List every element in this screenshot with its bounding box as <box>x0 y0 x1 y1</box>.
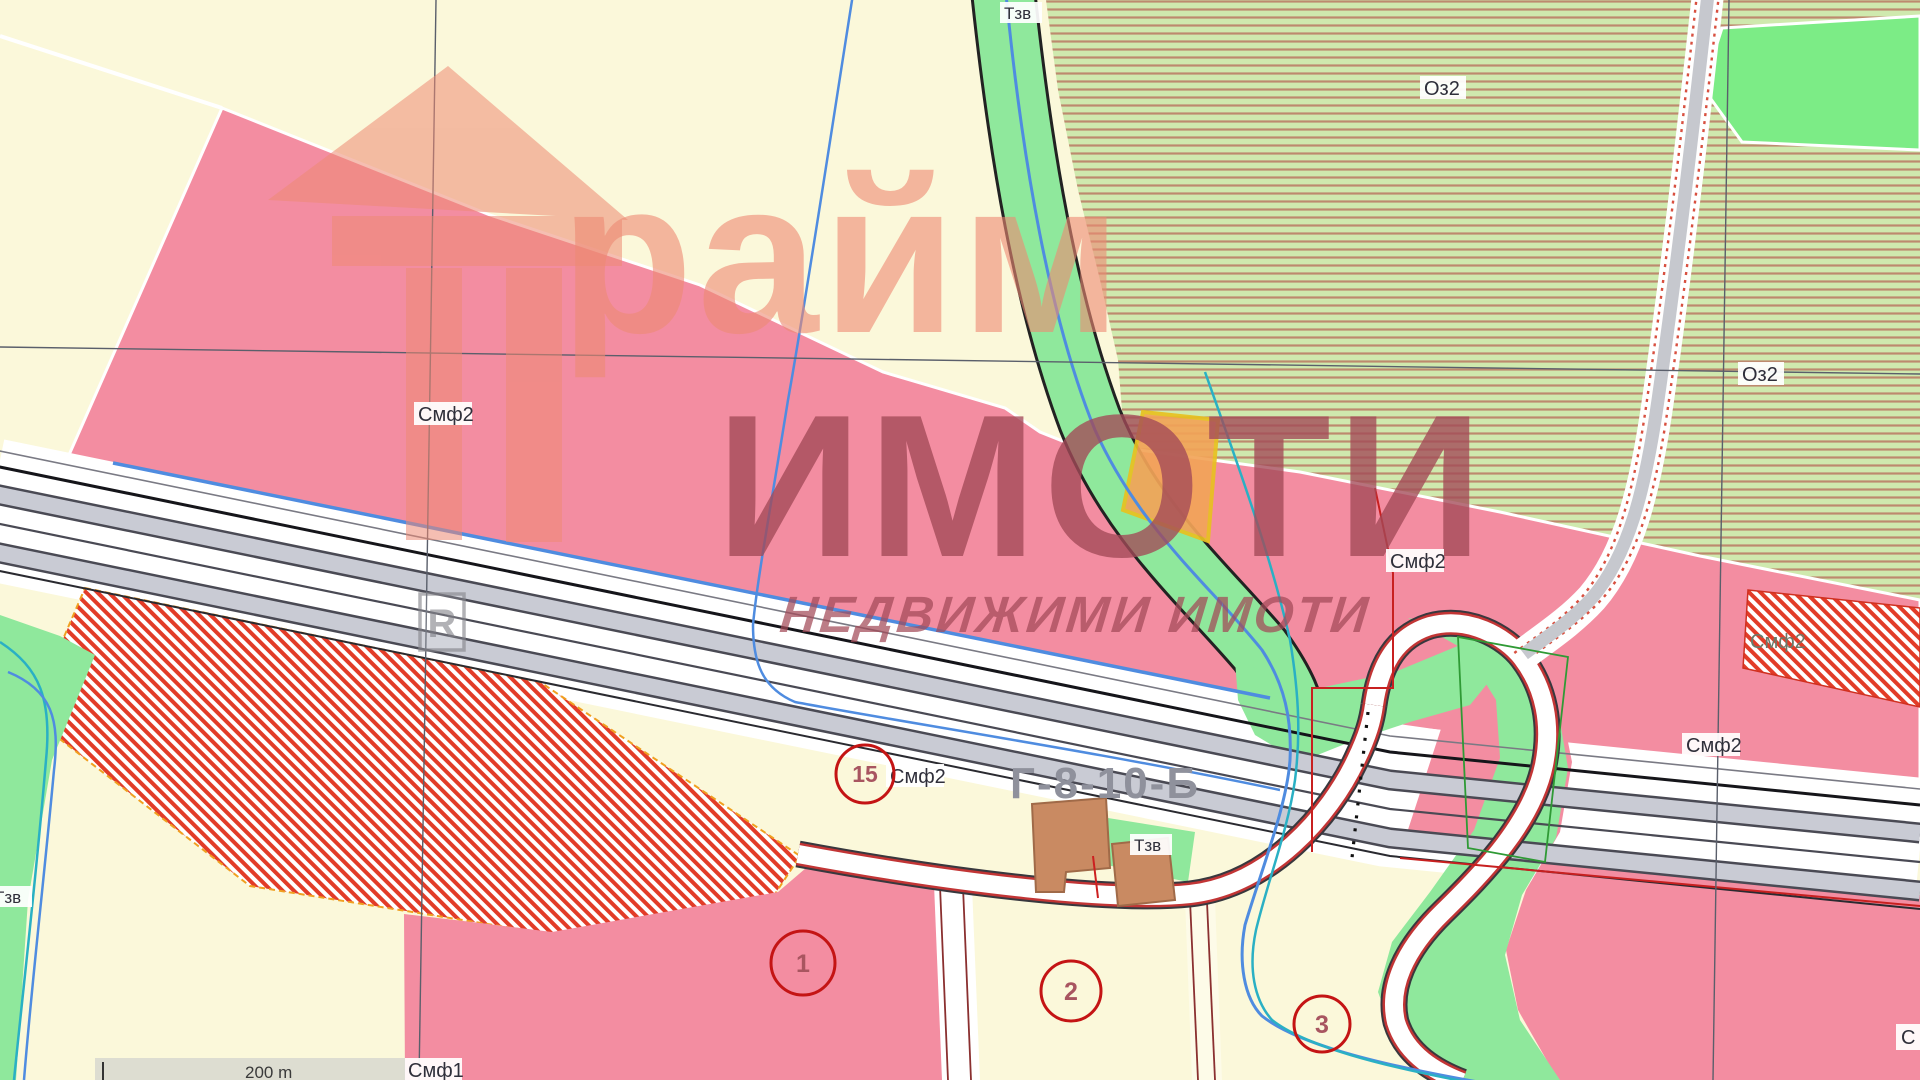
svg-text:Смф2: Смф2 <box>890 766 946 788</box>
zone-label-smf2-b: Смф2 <box>1386 549 1446 573</box>
svg-text:Смф1: Смф1 <box>408 1060 464 1080</box>
svg-text:Тзв: Тзв <box>1134 836 1161 855</box>
zone-label-smf2-a: Смф2 <box>414 402 474 426</box>
watermark-registered-icon: R <box>428 602 457 646</box>
svg-text:Тзв: Тзв <box>0 888 21 907</box>
zone-label-partial-right: С <box>1896 1024 1920 1050</box>
parcel-number-15: 15 <box>852 761 878 787</box>
svg-text:Смф2: Смф2 <box>418 404 474 426</box>
zone-label-smf1: Смф1 <box>404 1058 464 1080</box>
zone-label-smf2-d: Смф2 <box>1750 631 1806 653</box>
svg-text:Смф2: Смф2 <box>1686 735 1742 757</box>
svg-text:Тзв: Тзв <box>1004 4 1031 23</box>
zone-label-tzv-mid: Тзв <box>1130 834 1172 855</box>
map-viewport[interactable]: райм ИМОТИ НЕДВИЖИМИ ИМОТИ R Г-8-10-Б Тз… <box>0 0 1920 1080</box>
zone-label-smf2-c: Смф2 <box>1682 733 1742 757</box>
parcel-number-1: 1 <box>796 950 810 978</box>
watermark-brand-subtitle: НЕДВИЖИМИ ИМОТИ <box>777 586 1373 643</box>
watermark-brand-main: ИМОТИ <box>716 373 1489 600</box>
zone-label-tzv-top: Тзв <box>1000 2 1042 23</box>
zoning-map-canvas: райм ИМОТИ НЕДВИЖИМИ ИМОТИ R Г-8-10-Б Тз… <box>0 0 1920 1080</box>
watermark-brand-top: райм <box>560 136 1126 379</box>
zone-label-oz2-a: Оз2 <box>1420 76 1466 100</box>
road-designation: Г-8-10-Б <box>1010 759 1200 808</box>
parcel-number-2: 2 <box>1064 978 1078 1006</box>
parcel-number-3: 3 <box>1315 1011 1329 1039</box>
zone-label-oz2-b: Оз2 <box>1738 362 1784 386</box>
svg-text:Смф2: Смф2 <box>1390 551 1446 573</box>
svg-text:Оз2: Оз2 <box>1742 364 1778 386</box>
scale-bar-text: 200 m <box>245 1063 292 1080</box>
zone-label-tzv-left: Тзв <box>0 886 32 907</box>
green-area-topright <box>1703 16 1920 150</box>
scale-bar: 200 m <box>95 1058 405 1080</box>
svg-text:Оз2: Оз2 <box>1424 78 1460 100</box>
svg-text:С: С <box>1901 1027 1915 1049</box>
